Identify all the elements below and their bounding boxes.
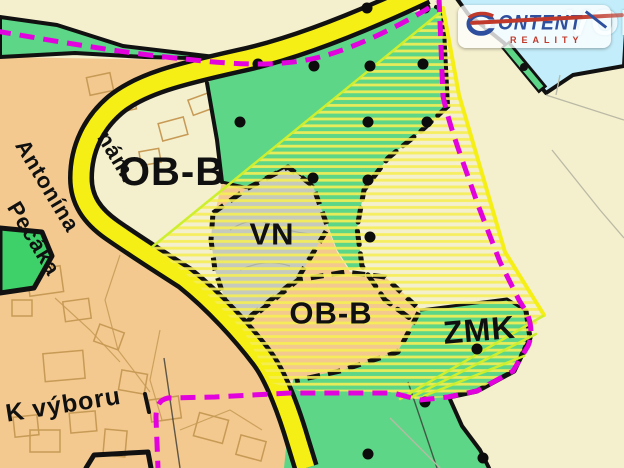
orchard-dot: [308, 173, 319, 184]
zone-label-vn: VN: [249, 219, 294, 250]
zone-label-zmk: ZMK: [442, 311, 517, 349]
orchard-dot: [309, 61, 320, 72]
orchard-dot: [478, 453, 489, 464]
orchard-dot: [362, 3, 373, 14]
orchard-dot: [363, 117, 374, 128]
screenshot-root: { "map": { "zone_labels": [ {"id":"zone-…: [0, 0, 624, 468]
black-node-on-strip: [520, 63, 528, 71]
orchard-dot: [418, 59, 429, 70]
orchard-dot: [363, 175, 374, 186]
orchard-dot: [365, 232, 376, 243]
orchard-dot: [235, 117, 246, 128]
zone-label-ob-b-center: OB-B: [289, 298, 372, 329]
orchard-dot: [422, 117, 433, 128]
orchard-dot: [365, 61, 376, 72]
orchard-dot: [363, 449, 374, 460]
zoning-map-canvas[interactable]: OB-BVNOB-BZMKnám.AntonínaPecákaK výboru …: [0, 0, 624, 468]
logo-tagline-text: REALITY: [510, 35, 584, 45]
